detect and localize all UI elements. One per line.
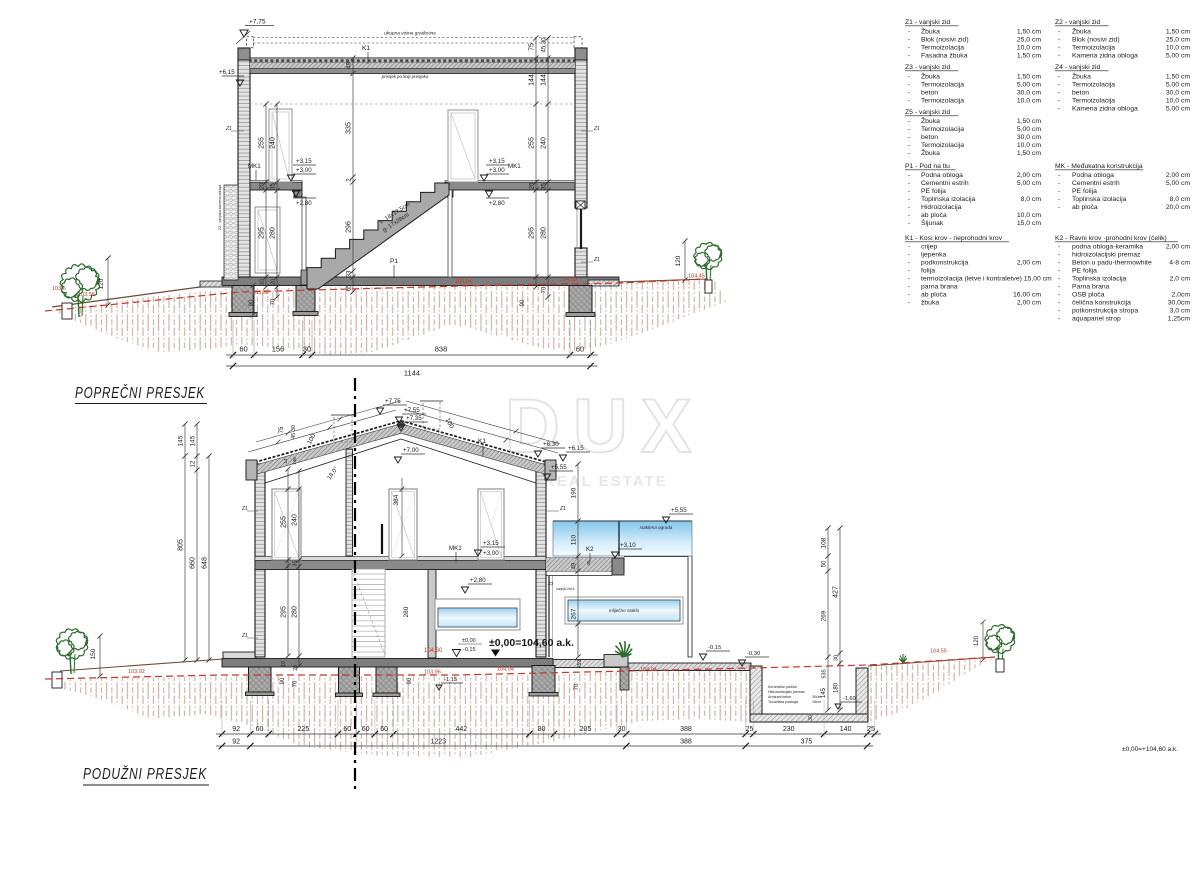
svg-text:30: 30 [618, 726, 626, 733]
svg-text:Šljunak: Šljunak [921, 218, 944, 227]
svg-text:103,55: 103,55 [78, 292, 95, 298]
svg-text:20: 20 [530, 182, 536, 189]
svg-text:Z2 - vanjski zid: Z2 - vanjski zid [1055, 19, 1101, 26]
svg-text:5,00 cm: 5,00 cm [1017, 126, 1042, 133]
svg-text:ljepenka: ljepenka [921, 252, 947, 259]
svg-text:-: - [1058, 172, 1060, 179]
svg-text:Cementni estrih: Cementni estrih [1072, 180, 1120, 187]
svg-text:Beton u padu-thermowhite: Beton u padu-thermowhite [1072, 260, 1152, 267]
svg-text:70: 70 [293, 680, 299, 687]
svg-text:15,0 cm: 15,0 cm [1017, 220, 1042, 227]
svg-text:5,00 cm: 5,00 cm [1017, 82, 1042, 89]
svg-text:2,00 cm: 2,00 cm [1017, 300, 1042, 307]
svg-text:295: 295 [281, 606, 288, 618]
svg-text:5,00 cm: 5,00 cm [1166, 82, 1191, 89]
svg-text:-: - [1058, 45, 1060, 52]
svg-text:146: 146 [292, 457, 297, 465]
svg-text:-: - [1058, 292, 1060, 299]
svg-text:1,25cm: 1,25cm [1168, 316, 1191, 323]
svg-text:25,0 cm: 25,0 cm [1017, 37, 1042, 44]
svg-text:Blok (nosivi zid): Blok (nosivi zid) [1072, 37, 1120, 44]
svg-text:48: 48 [347, 62, 353, 69]
svg-text:144: 144 [541, 74, 548, 86]
svg-text:90: 90 [249, 299, 255, 306]
svg-text:Podna obloga: Podna obloga [1072, 172, 1114, 179]
svg-text:104,60: 104,60 [424, 648, 443, 654]
svg-text:MK1: MK1 [248, 163, 261, 170]
svg-text:staklena ograda: staklena ograda [640, 525, 673, 530]
svg-text:10: 10 [281, 661, 287, 667]
svg-text:+6,30: +6,30 [543, 441, 559, 448]
svg-text:Termoizolacija: Termoizolacija [1072, 82, 1115, 89]
svg-text:8,0 cm: 8,0 cm [1021, 196, 1042, 203]
svg-text:267: 267 [571, 608, 578, 619]
svg-text:259: 259 [577, 660, 583, 669]
svg-text:30,0 cm: 30,0 cm [1166, 90, 1191, 97]
svg-text:potkonstrukcija stropa: potkonstrukcija stropa [1072, 308, 1138, 315]
svg-text:MK - Međukatna konstrukcija: MK - Međukatna konstrukcija [1055, 163, 1143, 170]
svg-text:5,00 cm: 5,00 cm [1166, 53, 1191, 60]
svg-text:-: - [1058, 82, 1060, 89]
svg-text:120: 120 [974, 635, 980, 646]
svg-text:145: 145 [821, 687, 827, 698]
svg-text:PE folija: PE folija [921, 188, 946, 195]
svg-text:-: - [908, 260, 910, 267]
svg-text:660: 660 [190, 557, 197, 569]
svg-text:30: 30 [834, 655, 840, 661]
svg-text:1144: 1144 [404, 369, 420, 378]
svg-text:Z1 - vanjski zid: Z1 - vanjski zid [905, 19, 951, 26]
svg-text:120: 120 [675, 255, 682, 266]
svg-text:14: 14 [283, 458, 288, 464]
svg-text:15cm: 15cm [812, 700, 821, 704]
svg-text:K1: K1 [478, 438, 486, 445]
svg-text:Cementni estrih: Cementni estrih [921, 180, 969, 187]
svg-text:205: 205 [580, 726, 592, 733]
svg-text:Z1: Z1 [593, 126, 600, 132]
svg-text:beton: beton [1072, 90, 1089, 97]
svg-text:-: - [908, 98, 910, 105]
svg-text:230: 230 [783, 726, 795, 733]
svg-text:-: - [908, 134, 910, 141]
svg-text:20,0 cm: 20,0 cm [1166, 204, 1191, 211]
svg-text:-: - [1058, 300, 1060, 307]
svg-text:Termoizolacija: Termoizolacija [1072, 98, 1115, 105]
svg-text:10,0 cm: 10,0 cm [1166, 45, 1191, 52]
svg-text:1,50 cm: 1,50 cm [1017, 29, 1042, 36]
svg-text:60: 60 [256, 726, 264, 733]
svg-text:-: - [908, 252, 910, 259]
svg-text:Žbuka: Žbuka [1072, 72, 1091, 81]
svg-text:75: 75 [529, 43, 536, 51]
svg-text:+7,35: +7,35 [406, 415, 422, 422]
svg-text:K1: K1 [362, 45, 370, 52]
svg-text:-: - [908, 220, 910, 227]
svg-text:120: 120 [98, 278, 105, 289]
svg-text:Termoizolacija: Termoizolacija [921, 45, 964, 52]
svg-text:-: - [1058, 308, 1060, 315]
svg-text:+2,80: +2,80 [296, 200, 312, 207]
svg-text:mliječno staklo: mliječno staklo [609, 608, 640, 613]
svg-text:110: 110 [571, 534, 578, 545]
svg-text:REAL ESTATE: REAL ESTATE [544, 473, 668, 490]
svg-text:+3,15: +3,15 [296, 158, 312, 165]
svg-text:70: 70 [574, 683, 580, 690]
svg-text:70: 70 [542, 286, 548, 293]
svg-text:5,00 cm: 5,00 cm [1166, 106, 1191, 113]
svg-text:-: - [1058, 90, 1060, 97]
svg-text:+2,80: +2,80 [470, 577, 486, 584]
svg-text:535: 535 [822, 669, 828, 678]
svg-text:280: 280 [541, 227, 548, 239]
svg-text:50: 50 [822, 560, 828, 567]
svg-text:-: - [1058, 53, 1060, 60]
svg-text:-: - [908, 90, 910, 97]
svg-text:10: 10 [260, 279, 266, 285]
svg-text:Termoizolacija: Termoizolacija [1072, 45, 1115, 52]
svg-text:33: 33 [347, 270, 353, 277]
svg-text:145: 145 [178, 435, 185, 446]
svg-text:190: 190 [571, 487, 578, 498]
svg-text:45: 45 [586, 560, 591, 566]
svg-text:Žbuka: Žbuka [1072, 27, 1091, 36]
svg-text:+3,00: +3,00 [296, 167, 312, 174]
svg-text:240: 240 [292, 514, 299, 526]
svg-text:MK1: MK1 [449, 545, 462, 552]
svg-text:30,0 cm: 30,0 cm [1017, 134, 1042, 141]
svg-text:1,50 cm: 1,50 cm [1166, 74, 1191, 81]
svg-text:90: 90 [520, 299, 526, 306]
svg-text:30: 30 [303, 345, 311, 354]
svg-text:35: 35 [271, 183, 277, 190]
svg-text:145: 145 [190, 435, 197, 446]
svg-text:-: - [1058, 260, 1060, 267]
svg-text:280: 280 [270, 227, 277, 239]
svg-text:388: 388 [680, 739, 692, 746]
svg-text:+6,15: +6,15 [219, 69, 235, 76]
svg-text:podkonstrukcija: podkonstrukcija [921, 260, 968, 267]
svg-text:-: - [1058, 188, 1060, 195]
svg-text:-: - [908, 37, 910, 44]
svg-text:ab ploča: ab ploča [921, 212, 947, 219]
svg-text:P1: P1 [390, 258, 398, 265]
svg-text:2,00 cm: 2,00 cm [1166, 172, 1191, 179]
svg-text:-: - [908, 126, 910, 133]
svg-text:-: - [1058, 37, 1060, 44]
svg-text:144: 144 [529, 74, 536, 86]
svg-text:442: 442 [456, 726, 468, 733]
svg-text:2,00 cm: 2,00 cm [1017, 172, 1042, 179]
svg-text:+3,15: +3,15 [489, 158, 505, 165]
svg-text:folija: folija [921, 268, 935, 275]
svg-text:16,00 cm: 16,00 cm [1013, 292, 1041, 299]
svg-text:-: - [908, 300, 910, 307]
svg-text:35: 35 [293, 560, 299, 566]
svg-text:-: - [908, 150, 910, 157]
svg-text:-0,30: -0,30 [747, 651, 760, 657]
svg-text:Hidroizolacijski premaz: Hidroizolacijski premaz [768, 690, 805, 694]
svg-text:-: - [1058, 180, 1060, 187]
svg-text:-: - [1058, 268, 1060, 275]
svg-text:Kamena zidna obloga: Kamena zidna obloga [1072, 53, 1138, 60]
svg-text:+7,55: +7,55 [404, 407, 420, 414]
svg-text:25: 25 [746, 726, 754, 733]
svg-text:+6,15: +6,15 [568, 445, 584, 452]
svg-text:1,50 cm: 1,50 cm [1017, 150, 1042, 157]
svg-text:ab ploča: ab ploča [921, 292, 947, 299]
svg-text:-: - [908, 268, 910, 275]
svg-text:+3,10: +3,10 [620, 542, 636, 549]
svg-text:Z4 - vanjski zid: Z4 - vanjski zid [1055, 64, 1101, 71]
svg-text:49: 49 [572, 562, 578, 569]
svg-text:30cm: 30cm [812, 695, 821, 699]
svg-text:90: 90 [280, 677, 286, 684]
svg-text:Žbuka: Žbuka [921, 148, 940, 157]
svg-text:30,0 cm: 30,0 cm [1017, 90, 1042, 97]
svg-text:-: - [1058, 204, 1060, 211]
svg-text:280: 280 [292, 606, 299, 618]
svg-text:+7,75: +7,75 [249, 19, 266, 26]
svg-text:-: - [1058, 196, 1060, 203]
svg-text:92: 92 [232, 739, 240, 746]
svg-text:Z1: Z1 [241, 506, 248, 512]
svg-text:hidroizolacijski premaz: hidroizolacijski premaz [1072, 252, 1141, 259]
svg-text:podna obloga-keramika: podna obloga-keramika [1072, 244, 1143, 251]
svg-text:60: 60 [380, 726, 388, 733]
svg-text:5,00 cm: 5,00 cm [1166, 180, 1191, 187]
svg-text:+5,55: +5,55 [551, 464, 567, 471]
svg-text:104,04: 104,04 [455, 279, 472, 285]
svg-text:-: - [1058, 29, 1060, 36]
svg-text:-: - [1058, 98, 1060, 105]
svg-text:150: 150 [90, 648, 97, 659]
svg-text:PE folija: PE folija [1072, 268, 1097, 275]
svg-text:427: 427 [833, 586, 840, 598]
svg-text:Z1: Z1 [593, 257, 600, 263]
svg-text:20: 20 [293, 665, 299, 671]
svg-text:-: - [1058, 276, 1060, 283]
svg-text:vanjski zid k.: vanjski zid k. [556, 587, 575, 591]
svg-text:Žbuka: Žbuka [921, 116, 940, 125]
svg-text:Termoizolacija: Termoizolacija [921, 82, 964, 89]
svg-text:280: 280 [403, 606, 410, 617]
svg-text:30,0cm: 30,0cm [1168, 300, 1191, 307]
svg-text:Hidroizolacija: Hidroizolacija [921, 204, 962, 211]
svg-text:255: 255 [529, 137, 536, 149]
svg-text:beton: beton [921, 90, 938, 97]
svg-text:103,92: 103,92 [128, 669, 145, 675]
svg-text:108: 108 [821, 537, 828, 548]
svg-text:269: 269 [821, 610, 828, 621]
svg-text:K1 - Kosi krov - neprohodni k: K1 - Kosi krov - neprohodni krov [905, 235, 1003, 242]
svg-text:-1,60: -1,60 [843, 696, 856, 702]
svg-text:-0,15: -0,15 [708, 645, 721, 651]
svg-text:MK1: MK1 [508, 163, 521, 170]
svg-text:60: 60 [239, 345, 247, 354]
svg-text:45 30: 45 30 [291, 425, 297, 439]
svg-text:+3,00: +3,00 [483, 550, 499, 557]
svg-text:1,50 cm: 1,50 cm [1017, 118, 1042, 125]
svg-text:-: - [908, 142, 910, 149]
svg-text:Z5 - vanjski zid: Z5 - vanjski zid [905, 109, 951, 116]
svg-text:-: - [1058, 106, 1060, 113]
svg-text:388: 388 [680, 726, 692, 733]
svg-text:Armirani beton: Armirani beton [768, 695, 791, 699]
svg-text:104,55: 104,55 [930, 649, 947, 655]
svg-text:8,0 cm: 8,0 cm [1170, 196, 1191, 203]
svg-text:75: 75 [279, 426, 285, 433]
svg-text:POPREČNI PRESJEK: POPREČNI PRESJEK [75, 385, 205, 402]
svg-text:5,00 cm: 5,00 cm [1017, 180, 1042, 187]
svg-text:-: - [908, 180, 910, 187]
svg-text:90: 90 [407, 677, 413, 684]
svg-text:±0,00=+104,60 a.k.: ±0,00=+104,60 a.k. [1122, 746, 1178, 753]
svg-text:2,00 cm: 2,00 cm [1166, 244, 1191, 251]
svg-text:Blok (nosivi zid): Blok (nosivi zid) [921, 37, 969, 44]
svg-text:+2,80: +2,80 [489, 200, 505, 207]
svg-text:10,0 cm: 10,0 cm [1017, 212, 1042, 219]
svg-text:92: 92 [232, 726, 240, 733]
svg-text:Fasadna žbuka: Fasadna žbuka [921, 53, 968, 60]
svg-text:+7,00: +7,00 [403, 447, 419, 454]
svg-text:-: - [908, 284, 910, 291]
svg-text:-: - [908, 196, 910, 203]
svg-text:+7,75: +7,75 [385, 398, 401, 405]
svg-text:-: - [908, 212, 910, 219]
svg-text:Žbuka: Žbuka [921, 72, 940, 81]
svg-text:Kamena zidna obloga: Kamena zidna obloga [1072, 106, 1138, 113]
svg-text:-: - [1058, 74, 1060, 81]
svg-text:45,30: 45,30 [542, 37, 548, 53]
svg-text:crijep: crijep [921, 244, 937, 251]
svg-text:384: 384 [393, 494, 400, 505]
svg-text:OSB ploča: OSB ploča [1072, 292, 1105, 299]
svg-text:presjek po liniji presjeka: presjek po liniji presjeka [381, 74, 429, 79]
svg-text:4-8 cm: 4-8 cm [1169, 260, 1190, 267]
svg-text:-: - [908, 172, 910, 179]
svg-text:+3,00: +3,00 [489, 167, 505, 174]
svg-text:104,60: 104,60 [560, 277, 577, 283]
svg-text:140: 140 [840, 726, 852, 733]
svg-text:-: - [1058, 244, 1060, 251]
svg-text:375: 375 [801, 739, 813, 746]
svg-text:12: 12 [191, 460, 197, 467]
svg-text:+3,15: +3,15 [483, 540, 499, 547]
svg-text:180: 180 [834, 682, 840, 693]
svg-text:1,50 cm: 1,50 cm [1017, 53, 1042, 60]
svg-text:Z2 - vanjska kamena obloga: Z2 - vanjska kamena obloga [218, 185, 222, 230]
svg-text:103,6: 103,6 [52, 286, 66, 292]
svg-text:648: 648 [202, 557, 209, 569]
svg-text:Termoizolacija: Termoizolacija [921, 142, 964, 149]
svg-text:-: - [908, 45, 910, 52]
svg-text:K2: K2 [586, 546, 594, 553]
svg-text:Termoizolacija: Termoizolacija [921, 98, 964, 105]
svg-text:P1 - Pod na tlu: P1 - Pod na tlu [905, 163, 950, 170]
svg-text:PODUŽNI PRESJEK: PODUŽNI PRESJEK [83, 766, 207, 783]
svg-text:240: 240 [270, 137, 277, 149]
svg-text:10,0 cm: 10,0 cm [1017, 45, 1042, 52]
svg-text:beton: beton [921, 134, 938, 141]
svg-text:-: - [908, 276, 910, 283]
svg-text:225: 225 [298, 726, 310, 733]
svg-text:2,0cm: 2,0cm [1171, 292, 1190, 299]
svg-text:2,0 cm: 2,0 cm [1170, 276, 1191, 283]
svg-text:-: - [908, 292, 910, 299]
svg-text:-: - [908, 82, 910, 89]
svg-text:Z1: Z1 [241, 633, 248, 639]
svg-text:Tucanička podloga: Tucanička podloga [768, 700, 798, 704]
svg-text:60: 60 [343, 726, 351, 733]
svg-text:Podna obloga: Podna obloga [921, 172, 963, 179]
svg-text:Žbuka: Žbuka [921, 27, 940, 36]
svg-text:20: 20 [260, 182, 266, 189]
svg-text:parna brana: parna brana [921, 284, 958, 291]
svg-text:335: 335 [346, 122, 353, 134]
svg-text:PE folija: PE folija [1072, 188, 1097, 195]
svg-text:Parna brana: Parna brana [1072, 284, 1110, 291]
svg-text:104,45: 104,45 [688, 274, 705, 280]
svg-text:296: 296 [346, 221, 353, 233]
svg-text:20: 20 [271, 279, 277, 285]
svg-text:65: 65 [347, 284, 353, 291]
svg-text:-: - [908, 204, 910, 211]
svg-text:104,04: 104,04 [497, 667, 514, 673]
svg-text:1,50 cm: 1,50 cm [1166, 29, 1191, 36]
svg-text:838: 838 [435, 345, 448, 354]
svg-text:DUX: DUX [505, 384, 704, 469]
svg-text:10,0 cm: 10,0 cm [1166, 98, 1191, 105]
svg-text:-: - [1058, 316, 1060, 323]
svg-text:35: 35 [542, 183, 548, 190]
svg-text:Toplinska izolacija: Toplinska izolacija [921, 196, 976, 203]
svg-text:1,50 cm: 1,50 cm [1017, 74, 1042, 81]
svg-text:-: - [908, 244, 910, 251]
svg-text:±0,00=104,60 a.k.: ±0,00=104,60 a.k. [489, 637, 574, 649]
svg-text:25,0 cm: 25,0 cm [1166, 37, 1191, 44]
svg-text:-: - [908, 29, 910, 36]
svg-text:Z1: Z1 [559, 506, 566, 512]
svg-text:Keramičke pločice: Keramičke pločice [768, 685, 797, 689]
svg-text:60: 60 [362, 726, 370, 733]
svg-text:-1,15: -1,15 [444, 677, 457, 683]
svg-text:ab ploča: ab ploča [1072, 204, 1098, 211]
svg-text:termoizolacija (letve i kontra: termoizolacija (letve i kontraletve) 15,… [921, 276, 1052, 283]
svg-text:+5,55: +5,55 [671, 507, 687, 514]
svg-text:Z1: Z1 [225, 126, 232, 132]
svg-text:Toplinska izolacija: Toplinska izolacija [1072, 196, 1127, 203]
svg-text:žbuka: žbuka [921, 300, 939, 307]
svg-text:ukupna visina građevine: ukupna visina građevine [384, 31, 436, 37]
svg-text:70: 70 [271, 298, 277, 305]
svg-text:Termoizolacija: Termoizolacija [921, 126, 964, 133]
svg-text:1223: 1223 [430, 739, 446, 746]
svg-text:80: 80 [538, 726, 546, 733]
svg-text:-: - [1058, 284, 1060, 291]
svg-text:-: - [908, 53, 910, 60]
svg-text:-: - [1058, 252, 1060, 259]
svg-text:295: 295 [259, 227, 266, 239]
svg-text:3,0 cm: 3,0 cm [1170, 308, 1191, 315]
svg-text:25: 25 [867, 726, 875, 733]
svg-text:805: 805 [178, 539, 185, 551]
svg-text:±0,00: ±0,00 [462, 638, 476, 644]
svg-text:240: 240 [541, 137, 548, 149]
svg-text:2,00 cm: 2,00 cm [1017, 260, 1042, 267]
svg-text:295: 295 [529, 227, 536, 239]
svg-text:-: - [908, 74, 910, 81]
svg-text:aquapanel strop: aquapanel strop [1072, 316, 1121, 323]
